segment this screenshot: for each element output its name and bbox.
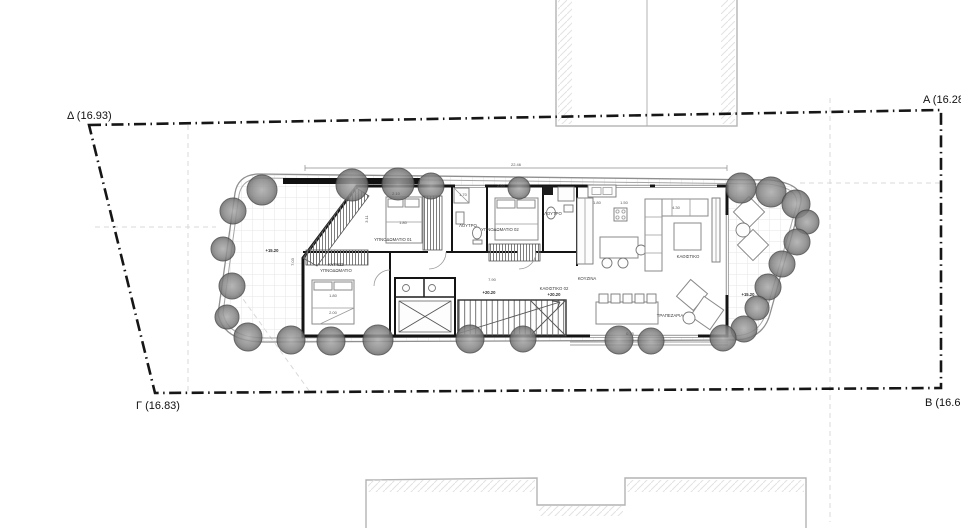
hatch-band [558,0,572,124]
dimension-label: 0.75 [626,331,635,336]
room-label: ΚΑΘΙΣΤΙΚΟ [677,254,700,259]
bed-room02 [495,198,538,240]
room-label: ΛΟΥΤΡΟ [544,211,562,216]
hatch-band [721,0,735,124]
tree-icon [215,305,239,329]
dimension-label: 7.03 [290,257,295,266]
bed-master [312,280,354,324]
adjacent-building-top [556,0,737,126]
room-label: ΛΟΥΤΡΟ [459,223,477,228]
chair [611,294,620,303]
dimension-label: 2.60 [497,183,506,188]
dimension-label: 3.11 [364,214,369,222]
tree-icon [710,325,736,351]
cooktop [614,208,627,221]
dimension-label: 2.00 [329,310,338,315]
dimension-label: 2.10 [392,191,401,196]
coffee-table [674,223,701,250]
stool [602,258,612,268]
room-label: ΥΠΝΟΔΩΜΑΤΙΟ 02 [481,227,519,232]
tree-icon [769,251,795,277]
tree-icon [456,325,484,353]
kitchen-island [600,237,638,258]
elevation-label: +20.20 [548,292,562,297]
chair [599,294,608,303]
boundary-corner-label: Δ (16.93) [67,110,112,122]
tree-icon [784,229,810,255]
elevation-label: +20.20 [483,290,497,295]
floor-plan-drawing: ΥΠΝΟΔΩΜΑΤΙΟ 01ΛΟΥΤΡΟΥΠΝΟΔΩΜΑΤΙΟ 02ΛΟΥΤΡΟ… [0,0,961,528]
boundary-corner-label: Β (16.68) [925,397,961,409]
tree-icon [220,198,246,224]
wc-toilet [429,285,436,292]
dining-table [596,302,658,324]
tree-icon [756,177,786,207]
site-plan-svg: ΥΠΝΟΔΩΜΑΤΙΟ 01ΛΟΥΤΡΟΥΠΝΟΔΩΜΑΤΙΟ 02ΛΟΥΤΡΟ… [0,0,961,528]
room-label: ΥΠΝΟΔΩΜΑΤΙΟ [320,268,352,273]
elevation-label: +15.20 [266,248,280,253]
room-label: ΚΟΥΖΙΝΑ [578,276,597,281]
chair [647,294,656,303]
tree-icon [234,323,262,351]
room-label: ΚΥΡΙΩΣ [328,262,344,267]
tree-icon [336,169,368,201]
tree-icon [277,326,305,354]
room-label: ΥΠΝΟΔΩΜΑΤΙΟ 01 [374,237,412,242]
room-label: ΤΡΑΠΕΖΑΡΙΑ [657,313,684,318]
tree-icon [247,175,277,205]
tree-icon [219,273,245,299]
dimension-label: 1.80 [399,220,408,225]
dimension-label: 1.50 [620,200,629,205]
tree-icon [211,237,235,261]
tree-icon [508,177,530,199]
dimension-label: 7.90 [488,277,497,282]
tree-icon [510,326,536,352]
boundary-corner-label: Α (16.28) [923,94,961,106]
chair [635,294,644,303]
room-label: ΚΑΘΙΣΤΙΚΟ 02 [540,286,569,291]
tree-icon [363,325,393,355]
dimension-label: 4.30 [672,205,681,210]
boundary-corner-label: Γ (16.83) [136,400,180,412]
tree-icon [726,173,756,203]
tree-icon [638,328,664,354]
tree-icon [317,327,345,355]
wc-toilet [403,285,410,292]
stool [618,258,628,268]
dimension-label: 1.80 [329,293,338,298]
dimension-label: 22.46 [511,162,522,167]
dimension-label: 1.80 [593,200,602,205]
dimension-label: 1.70 [459,192,468,197]
chair [623,294,632,303]
tree-icon [418,173,444,199]
side-table [683,312,695,324]
elevation-label: +15.20 [742,292,756,297]
adjacent-building-bottom [366,478,806,528]
